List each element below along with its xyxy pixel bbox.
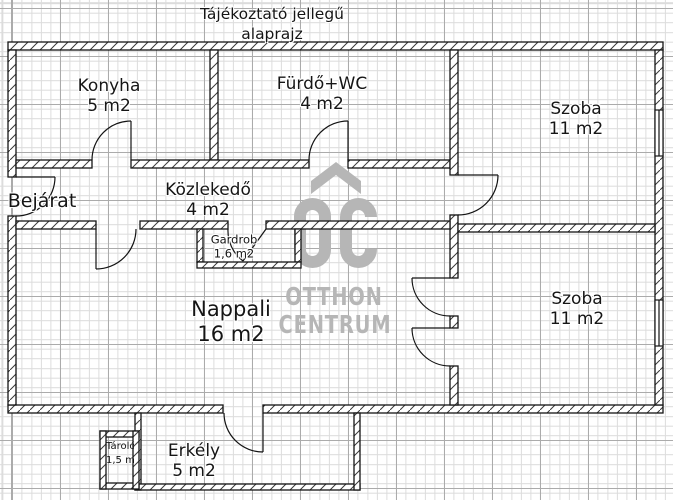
door-arc bbox=[96, 229, 136, 269]
wall-gardrob bbox=[295, 229, 301, 262]
title-line2: alaprajz bbox=[200, 24, 344, 44]
wall-balcony bbox=[135, 484, 360, 490]
wall bbox=[450, 366, 458, 405]
door-arc bbox=[458, 175, 498, 215]
room-area: 1,5 m2 bbox=[106, 454, 134, 468]
room-area: 5 m2 bbox=[168, 461, 220, 481]
wall bbox=[266, 221, 450, 229]
room-area: 11 m2 bbox=[549, 119, 603, 139]
oc-logo-letter-c bbox=[346, 204, 371, 262]
room-label-erkely: Erkély 5 m2 bbox=[168, 441, 220, 481]
room-label-szoba-bottom: Szoba 11 m2 bbox=[550, 289, 604, 329]
wall bbox=[140, 221, 228, 229]
wall bbox=[8, 50, 16, 177]
door-erkely bbox=[224, 413, 263, 452]
wall bbox=[263, 405, 663, 413]
door-konyha bbox=[92, 121, 131, 160]
watermark-line2: CENTRUM bbox=[279, 311, 392, 340]
wall bbox=[8, 216, 16, 405]
room-name: Gardrob bbox=[211, 233, 258, 247]
wall-gardrob bbox=[197, 262, 301, 268]
room-name: Fürdő+WC bbox=[277, 74, 367, 94]
wall bbox=[458, 224, 655, 232]
wall bbox=[450, 316, 458, 328]
window bbox=[655, 300, 663, 346]
room-label-szoba-top: Szoba 11 m2 bbox=[549, 99, 603, 139]
door-arc bbox=[412, 278, 450, 316]
room-name: Szoba bbox=[549, 99, 603, 119]
room-label-bejarat: Bejárat bbox=[8, 190, 77, 212]
room-name: Tároló bbox=[106, 440, 134, 454]
room-name: Konyha bbox=[78, 76, 141, 96]
wall bbox=[8, 405, 223, 413]
wall-gardrob bbox=[197, 229, 203, 262]
room-label-furdo-wc: Fürdő+WC 4 m2 bbox=[277, 74, 367, 114]
door-arc bbox=[224, 413, 263, 452]
room-label-kozlekedo: Közlekedő 4 m2 bbox=[165, 180, 251, 220]
wall bbox=[348, 160, 450, 168]
room-name: Bejárat bbox=[8, 190, 77, 212]
floor-plan-page: { "title": { "line1": "Tájékoztató jelle… bbox=[0, 0, 673, 500]
wall bbox=[16, 221, 96, 229]
door-szoba-felso bbox=[458, 175, 498, 215]
title-line1: Tájékoztató jellegű bbox=[200, 4, 344, 24]
room-name: Nappali bbox=[191, 297, 271, 322]
room-label-gardrob: Gardrob 1,6 m2 bbox=[211, 233, 258, 260]
page-title: Tájékoztató jellegű alaprajz bbox=[200, 4, 344, 44]
wall bbox=[655, 50, 663, 405]
room-area: 16 m2 bbox=[191, 322, 271, 347]
wall bbox=[210, 50, 218, 160]
window bbox=[655, 110, 663, 156]
door-arc bbox=[412, 328, 450, 366]
room-label-konyha: Konyha 5 m2 bbox=[78, 76, 141, 116]
room-area: 1,6 m2 bbox=[211, 247, 258, 261]
door-szoba-also-1 bbox=[412, 278, 450, 316]
room-name: Erkély bbox=[168, 441, 220, 461]
watermark-line1: OTTHON bbox=[285, 283, 382, 312]
wall bbox=[131, 160, 309, 168]
wall bbox=[16, 160, 92, 168]
door-nappali bbox=[96, 229, 136, 269]
door-szoba-also-2 bbox=[412, 328, 450, 366]
room-area: 4 m2 bbox=[277, 94, 367, 114]
room-name: Szoba bbox=[550, 289, 604, 309]
room-area: 4 m2 bbox=[165, 200, 251, 220]
door-furdo bbox=[309, 121, 348, 160]
wall-balcony bbox=[354, 413, 360, 490]
room-label-tarolo: Tároló 1,5 m2 bbox=[106, 440, 134, 474]
door-arc bbox=[309, 121, 348, 160]
oc-logo-letter-o bbox=[300, 204, 325, 262]
wall bbox=[450, 50, 458, 175]
doors bbox=[16, 121, 498, 452]
wall bbox=[450, 215, 458, 278]
door-arc bbox=[92, 121, 131, 160]
room-area: 11 m2 bbox=[550, 309, 604, 329]
room-name: Közlekedő bbox=[165, 180, 251, 200]
room-label-nappali: Nappali 16 m2 bbox=[191, 297, 271, 347]
room-area: 5 m2 bbox=[78, 96, 141, 116]
